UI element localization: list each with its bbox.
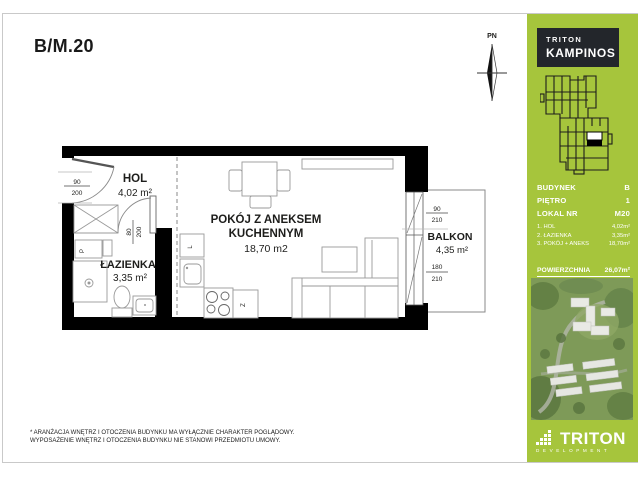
sidebar: TRITON KAMPINOS xyxy=(527,14,638,462)
room-row: 1. HOL 4,02m² xyxy=(537,223,630,232)
room-row: 3. POKÓJ + ANEKS 18,70m² xyxy=(537,240,630,249)
info-label: LOKAL NR xyxy=(537,207,578,220)
building-key-plan xyxy=(540,74,624,176)
info-row-floor: PIĘTRO 1 xyxy=(537,194,630,207)
room-name: 3. POKÓJ + ANEKS xyxy=(537,240,589,249)
brand-name: TRITON xyxy=(546,35,619,44)
info-label: PIĘTRO xyxy=(537,194,566,207)
total-area-label: POWIERZCHNIA xyxy=(537,267,590,274)
info-row-unit-number: LOKAL NR M20 xyxy=(537,207,630,220)
developer-name: TRITON xyxy=(560,431,626,446)
room-area: 4,02m² xyxy=(612,223,630,232)
room-name: 2. ŁAZIENKA xyxy=(537,232,571,241)
info-label: BUDYNEK xyxy=(537,181,576,194)
project-name: KAMPINOS xyxy=(546,46,619,60)
room-list: 1. HOL 4,02m² 2. ŁAZIENKA 3,35m² 3. POKÓ… xyxy=(537,223,630,249)
total-area-value: 26,07m² xyxy=(605,267,630,274)
disclaimer-line-2: WYPOSAŻENIE WNĘTRZ I OTOCZENIA BUDYNKU N… xyxy=(30,437,330,445)
disclaimer: * ARANŻACJA WNĘTRZ I OTOCZENIA BUDYNKU M… xyxy=(30,429,330,445)
room-name: 1. HOL xyxy=(537,223,555,232)
room-row: 2. ŁAZIENKA 3,35m² xyxy=(537,232,630,241)
aerial-photo xyxy=(531,278,633,420)
unit-title: B/M.20 xyxy=(34,36,94,57)
info-row-building: BUDYNEK B xyxy=(537,181,630,194)
triton-bars-icon xyxy=(536,430,558,446)
info-value: B xyxy=(624,181,630,194)
developer-sub: DEVELOPMENT xyxy=(536,448,632,453)
info-value: 1 xyxy=(626,194,630,207)
developer-logo: TRITON DEVELOPMENT xyxy=(536,430,632,453)
brand-badge: TRITON KAMPINOS xyxy=(537,28,619,67)
room-area: 3,35m² xyxy=(612,232,630,241)
info-value: M20 xyxy=(615,207,630,220)
floor-plan-page: B/M.20 90 200 xyxy=(0,0,640,480)
highlighted-unit xyxy=(587,132,602,146)
room-area: 18,70m² xyxy=(609,240,630,249)
total-area-row: POWIERZCHNIA 26,07m² xyxy=(537,267,630,277)
disclaimer-line-1: * ARANŻACJA WNĘTRZ I OTOCZENIA BUDYNKU M… xyxy=(30,429,330,437)
unit-info: BUDYNEK B PIĘTRO 1 LOKAL NR M20 xyxy=(537,181,630,220)
